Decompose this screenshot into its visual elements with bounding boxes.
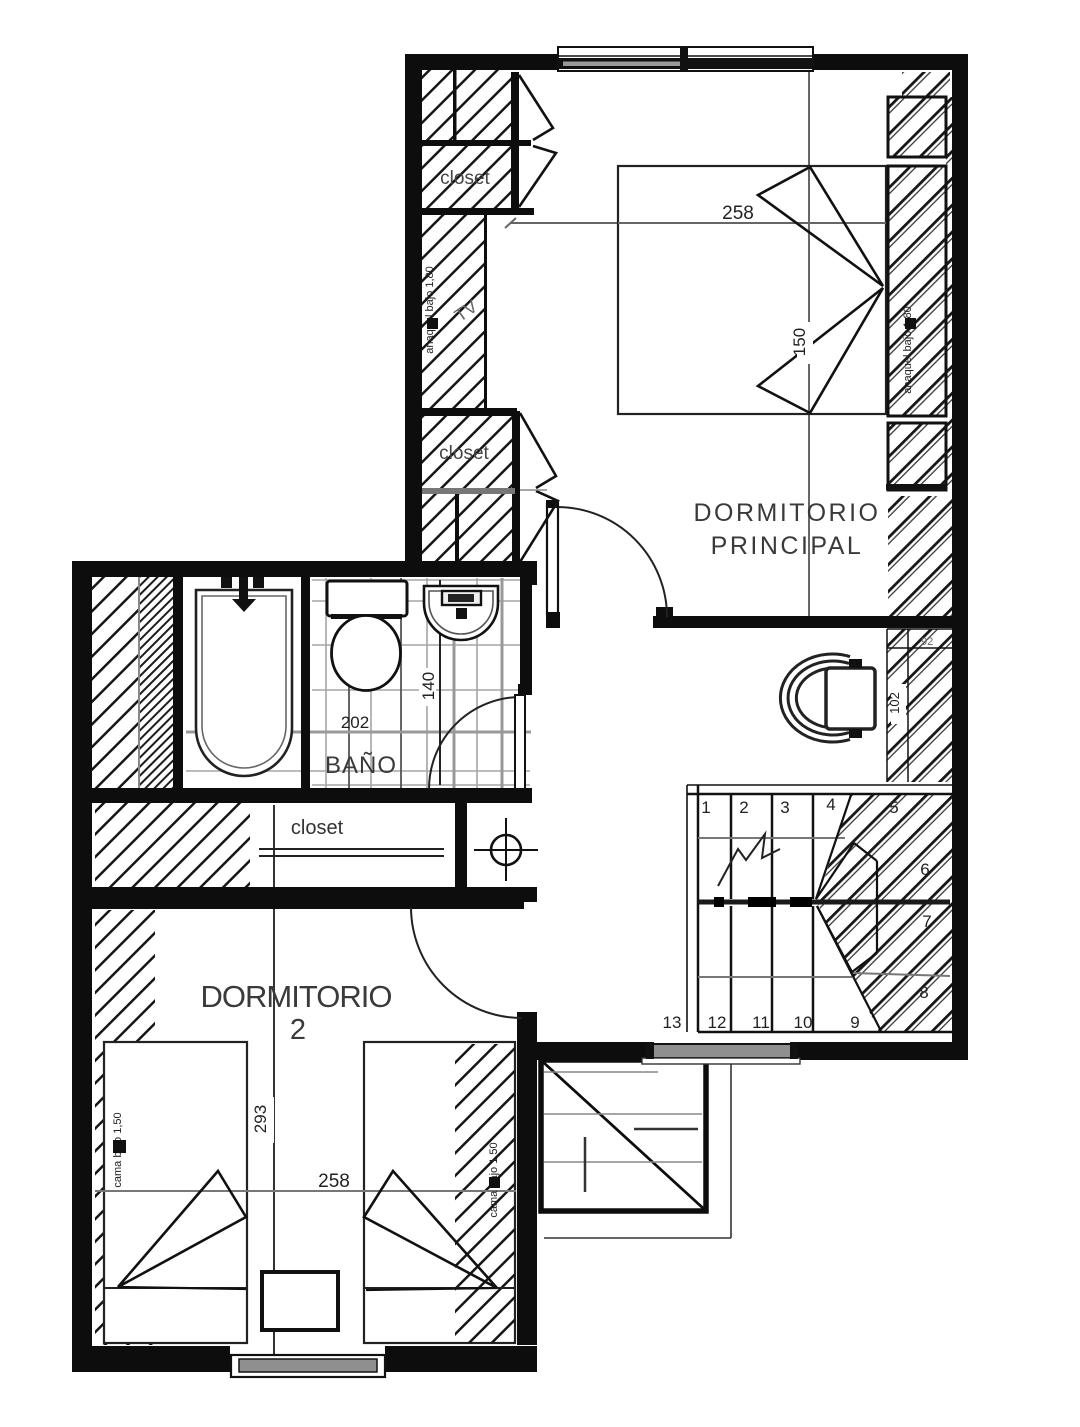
svg-text:closet: closet <box>440 168 490 189</box>
svg-text:92: 92 <box>921 636 933 648</box>
svg-text:1: 1 <box>701 798 710 817</box>
svg-text:2: 2 <box>290 1014 306 1046</box>
svg-text:202: 202 <box>341 713 369 732</box>
svg-text:6: 6 <box>920 860 929 879</box>
svg-text:12: 12 <box>708 1013 727 1032</box>
svg-text:5: 5 <box>889 798 898 817</box>
svg-text:8: 8 <box>919 983 928 1002</box>
svg-text:10: 10 <box>794 1013 813 1032</box>
svg-text:11: 11 <box>752 1013 770 1032</box>
svg-text:150: 150 <box>790 328 809 356</box>
svg-text:closet: closet <box>291 817 344 839</box>
svg-text:2: 2 <box>739 798 748 817</box>
svg-text:3: 3 <box>780 798 789 817</box>
svg-text:PRINCIPAL: PRINCIPAL <box>711 532 864 560</box>
svg-text:BAÑO: BAÑO <box>325 752 397 779</box>
svg-text:102: 102 <box>887 692 902 714</box>
svg-text:DORMITORIO: DORMITORIO <box>201 979 392 1014</box>
svg-text:closet: closet <box>439 443 489 464</box>
svg-text:DORMITORIO: DORMITORIO <box>693 499 880 527</box>
svg-text:4: 4 <box>826 795 835 814</box>
svg-text:258: 258 <box>318 1171 350 1192</box>
svg-text:9: 9 <box>850 1013 859 1032</box>
svg-text:258: 258 <box>722 203 754 224</box>
svg-text:293: 293 <box>251 1105 270 1133</box>
svg-text:13: 13 <box>663 1013 682 1032</box>
svg-text:7: 7 <box>922 912 931 931</box>
svg-text:140: 140 <box>419 672 438 700</box>
svg-text:anaquel bajo 1,80: anaquel bajo 1,80 <box>424 266 436 353</box>
